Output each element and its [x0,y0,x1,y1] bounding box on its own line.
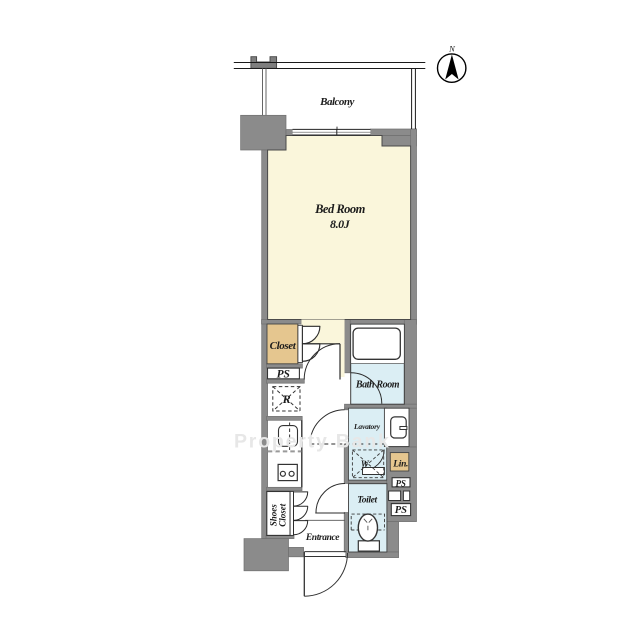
svg-text:Property Bank: Property Bank [234,431,391,453]
svg-text:8.0J: 8.0J [330,217,351,231]
svg-text:Bath Room: Bath Room [355,379,400,390]
svg-text:W: W [361,459,370,469]
svg-text:PS: PS [395,505,407,516]
svg-text:Toilet: Toilet [357,496,377,506]
svg-text:Bed Room: Bed Room [314,202,366,216]
svg-text:R: R [282,392,291,406]
svg-text:Lin.: Lin. [392,460,408,470]
svg-text:Closet: Closet [270,340,297,352]
svg-text:PS: PS [277,368,290,380]
svg-text:PS: PS [395,478,406,488]
svg-text:Balcony: Balcony [319,96,354,108]
svg-text:ShoesCloset: ShoesCloset [268,503,287,527]
svg-text:Entrance: Entrance [305,533,340,543]
